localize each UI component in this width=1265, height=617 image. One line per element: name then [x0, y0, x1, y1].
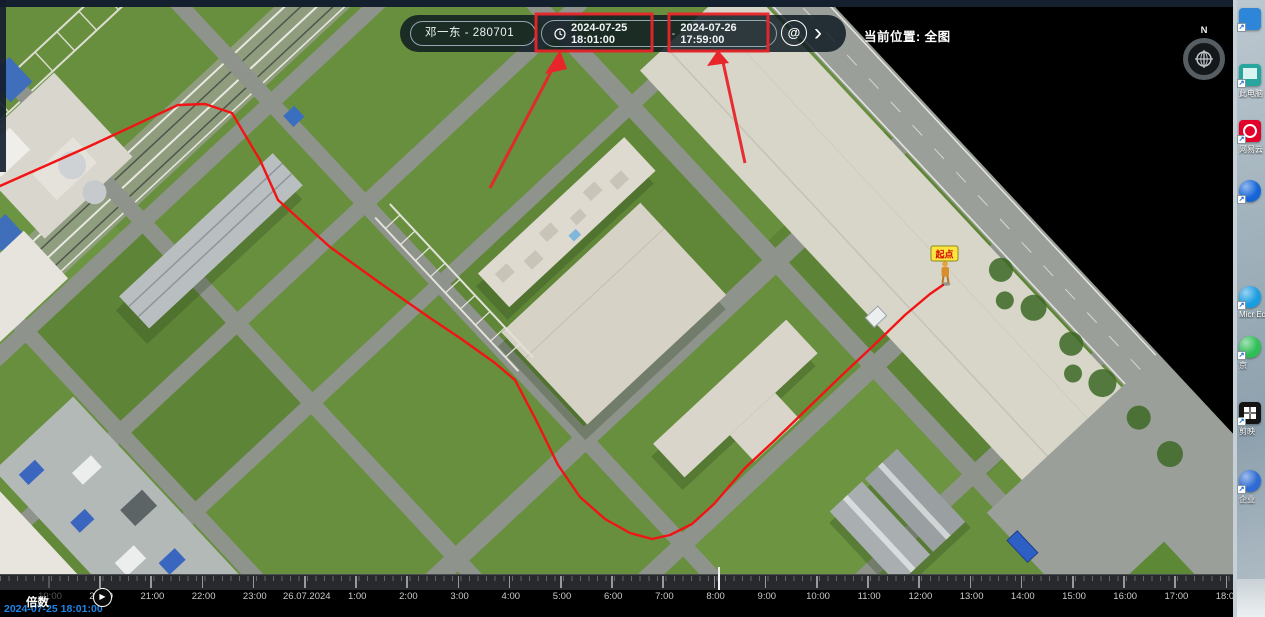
locate-button[interactable]: @ — [781, 20, 807, 46]
search-toolbar: 邓一东 - 280701 2024-07-25 18:01:00 - 2024-… — [400, 15, 846, 52]
desktop-icon-label: 企业 — [1239, 494, 1265, 505]
desktop-icon-label: 剪映 — [1239, 426, 1265, 437]
current-playback-time: 2024-07-25 18:01:00 — [4, 603, 103, 615]
desktop-taskbar-edge — [1237, 579, 1265, 617]
play-button[interactable]: ▶ — [93, 588, 112, 607]
compass-north-label: N — [1183, 25, 1225, 36]
speed-multiplier-label[interactable]: 倍数 — [26, 594, 49, 610]
map-left-edge — [0, 0, 6, 172]
desktop-icon[interactable]: ↗企业 — [1239, 470, 1265, 505]
current-location-label: 当前位置: 全图 — [864, 26, 951, 45]
desktop-icon[interactable]: ↗剪映 — [1239, 402, 1265, 437]
chevron-right-icon[interactable]: › — [814, 17, 822, 49]
desktop-icon[interactable]: ↗网易云 — [1239, 120, 1265, 155]
desktop-strip: ↗↗此电脑↗网易云↗↗Micr Ed↗京↗剪映↗企业 — [1237, 0, 1265, 617]
end-date-field[interactable]: 2024-07-26 17:59:00 — [680, 22, 776, 46]
app-window: 起点 邓一东 - 280701 2024-07-25 18:01:00 - 20… — [0, 0, 1265, 617]
desktop-icon[interactable]: ↗Micr Ed — [1239, 286, 1265, 319]
shortcut-arrow-icon: ↗ — [1237, 79, 1246, 88]
shortcut-arrow-icon: ↗ — [1237, 135, 1246, 144]
desktop-icon[interactable]: ↗此电脑 — [1239, 64, 1265, 99]
timeline-ticks[interactable]: 19:0020:0021:0022:0023:0026.07.20241:002… — [0, 574, 1233, 606]
clock-icon — [554, 28, 566, 40]
desktop-icon[interactable]: ↗ — [1239, 8, 1265, 32]
shortcut-arrow-icon: ↗ — [1237, 23, 1246, 32]
start-date-field[interactable]: 2024-07-25 18:01:00 — [571, 22, 667, 46]
shortcut-arrow-icon: ↗ — [1237, 485, 1246, 494]
shortcut-arrow-icon: ↗ — [1237, 195, 1246, 204]
desktop-icon-label: 京 — [1239, 360, 1265, 371]
window-top-edge — [0, 0, 1233, 7]
date-range-control[interactable]: 2024-07-25 18:01:00 - 2024-07-26 17:59:0… — [541, 20, 777, 47]
map-canvas[interactable]: 起点 — [0, 0, 1233, 617]
person-figure — [942, 261, 948, 267]
compass-globe-icon — [1191, 46, 1217, 72]
desktop-icon-label: 此电脑 — [1239, 88, 1265, 99]
shortcut-arrow-icon: ↗ — [1237, 301, 1246, 310]
shortcut-arrow-icon: ↗ — [1237, 351, 1246, 360]
compass-control[interactable]: N — [1183, 38, 1225, 80]
start-marker-label: 起点 — [934, 249, 953, 260]
date-separator: - — [672, 28, 676, 40]
desktop-icon[interactable]: ↗京 — [1239, 336, 1265, 371]
timeline-playhead[interactable] — [718, 567, 720, 590]
desktop-icon-label: 网易云 — [1239, 144, 1265, 155]
person-selector[interactable]: 邓一东 - 280701 — [410, 21, 536, 46]
desktop-icon-label: Micr Ed — [1239, 310, 1265, 319]
desktop-icon[interactable]: ↗ — [1239, 180, 1265, 204]
shortcut-arrow-icon: ↗ — [1237, 417, 1246, 426]
